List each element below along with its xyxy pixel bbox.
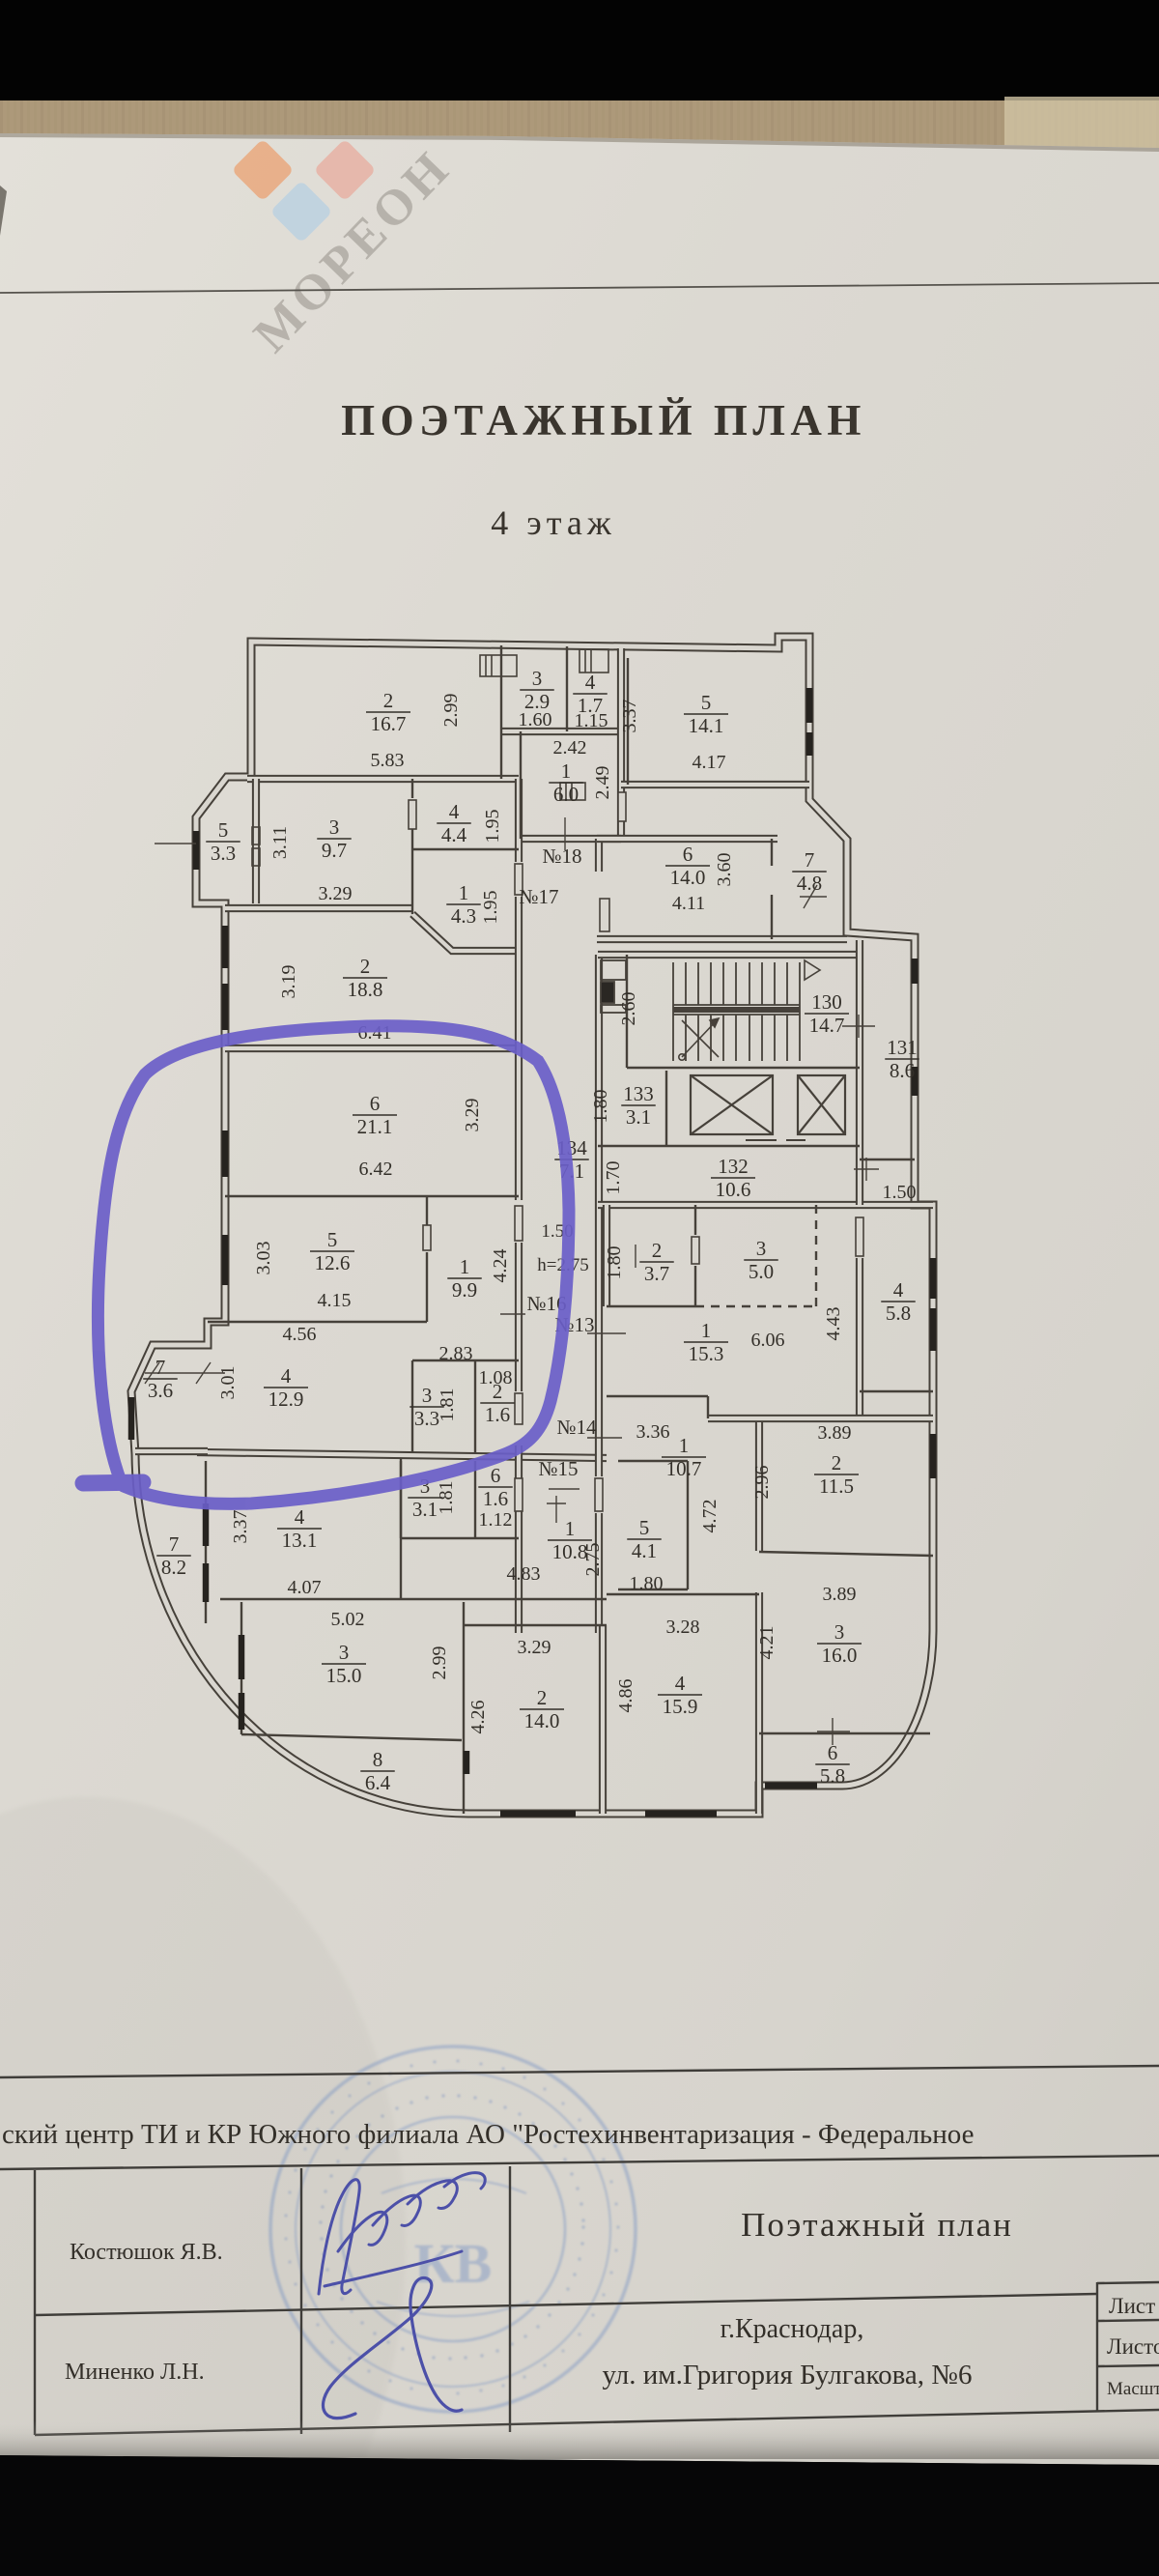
svg-text:14.1: 14.1 [689, 714, 724, 737]
svg-text:4.07: 4.07 [288, 1577, 322, 1598]
svg-text:4.56: 4.56 [283, 1324, 317, 1345]
svg-text:Листов: Листов [1107, 2334, 1159, 2359]
svg-text:4.21: 4.21 [756, 1626, 777, 1660]
svg-text:9.9: 9.9 [452, 1278, 477, 1302]
svg-text:6: 6 [370, 1092, 381, 1115]
svg-text:14.0: 14.0 [670, 866, 706, 889]
svg-text:ский центр ТИ и КР Южного фили: ский центр ТИ и КР Южного филиала АО "Ро… [2, 2119, 975, 2150]
svg-text:2.83: 2.83 [439, 1343, 473, 1364]
svg-text:1: 1 [679, 1434, 690, 1457]
svg-text:8.6: 8.6 [890, 1059, 915, 1082]
svg-text:2.75: 2.75 [582, 1543, 604, 1577]
svg-text:№14: №14 [556, 1416, 597, 1439]
svg-text:4: 4 [295, 1505, 305, 1529]
svg-text:4.4: 4.4 [441, 823, 467, 846]
svg-text:15.0: 15.0 [326, 1664, 362, 1687]
svg-text:7: 7 [169, 1532, 180, 1556]
svg-text:3.29: 3.29 [518, 1637, 551, 1658]
svg-text:16.7: 16.7 [371, 712, 407, 735]
svg-text:5.83: 5.83 [371, 750, 405, 771]
svg-text:2.60: 2.60 [618, 992, 639, 1026]
svg-text:ПОЭТАЖНЫЙ ПЛАН: ПОЭТАЖНЫЙ ПЛАН [341, 396, 866, 444]
svg-text:12.9: 12.9 [269, 1388, 304, 1411]
svg-text:3.89: 3.89 [823, 1584, 857, 1605]
svg-text:132: 132 [718, 1155, 749, 1178]
svg-text:2.99: 2.99 [440, 694, 462, 728]
svg-text:14.7: 14.7 [809, 1014, 845, 1037]
svg-text:1: 1 [460, 1255, 470, 1278]
svg-text:12.6: 12.6 [315, 1251, 351, 1274]
svg-text:4: 4 [281, 1364, 292, 1388]
svg-text:4.26: 4.26 [467, 1701, 489, 1734]
svg-text:5.02: 5.02 [331, 1609, 365, 1630]
svg-text:14.0: 14.0 [524, 1709, 560, 1732]
svg-text:8.2: 8.2 [161, 1556, 186, 1579]
svg-text:1: 1 [561, 759, 572, 783]
svg-text:№17: №17 [519, 885, 558, 908]
svg-text:4.43: 4.43 [823, 1307, 844, 1341]
svg-text:5: 5 [327, 1228, 338, 1251]
svg-text:4.72: 4.72 [699, 1500, 721, 1533]
svg-text:5.8: 5.8 [886, 1302, 911, 1325]
svg-text:5: 5 [218, 818, 229, 842]
svg-text:10.6: 10.6 [716, 1178, 751, 1201]
svg-text:1.6: 1.6 [483, 1487, 508, 1510]
svg-text:9.7: 9.7 [322, 839, 347, 862]
svg-text:4.8: 4.8 [797, 872, 822, 895]
svg-text:21.1: 21.1 [357, 1115, 393, 1138]
svg-text:3.89: 3.89 [818, 1422, 852, 1444]
svg-text:131: 131 [887, 1036, 918, 1059]
svg-text:1.80: 1.80 [604, 1246, 625, 1280]
svg-text:2: 2 [537, 1686, 548, 1709]
svg-text:2.42: 2.42 [553, 737, 587, 758]
svg-text:1.95: 1.95 [482, 810, 503, 844]
svg-text:5.8: 5.8 [820, 1764, 845, 1788]
svg-text:3: 3 [329, 816, 340, 839]
svg-text:4.11: 4.11 [672, 893, 705, 914]
svg-text:5: 5 [639, 1516, 650, 1539]
svg-text:6.42: 6.42 [359, 1159, 393, 1180]
svg-text:13.1: 13.1 [282, 1529, 318, 1552]
svg-text:2.99: 2.99 [429, 1646, 450, 1680]
svg-text:4: 4 [893, 1278, 904, 1302]
svg-text:№15: №15 [538, 1457, 578, 1480]
svg-text:4.15: 4.15 [318, 1290, 352, 1311]
svg-text:Лист: Лист [1109, 2294, 1155, 2318]
svg-text:1.95: 1.95 [480, 891, 501, 925]
svg-text:Поэтажный план: Поэтажный план [741, 2206, 1013, 2244]
svg-text:16.0: 16.0 [822, 1644, 858, 1667]
svg-text:5: 5 [701, 691, 712, 714]
svg-text:1.81: 1.81 [436, 1481, 457, 1515]
svg-text:4 этаж: 4 этаж [491, 503, 615, 542]
svg-text:4: 4 [585, 671, 596, 694]
svg-text:3: 3 [339, 1641, 350, 1664]
svg-text:3.1: 3.1 [412, 1498, 438, 1521]
svg-text:130: 130 [811, 990, 842, 1014]
svg-text:10.7: 10.7 [666, 1457, 702, 1480]
svg-text:1.60: 1.60 [519, 709, 552, 730]
svg-text:6.06: 6.06 [751, 1330, 785, 1351]
svg-text:3.7: 3.7 [644, 1262, 669, 1285]
svg-text:2: 2 [360, 955, 371, 978]
svg-text:2.49: 2.49 [592, 766, 613, 800]
svg-text:1: 1 [459, 881, 469, 904]
svg-text:3.29: 3.29 [462, 1099, 483, 1132]
svg-text:4.24: 4.24 [490, 1249, 511, 1283]
svg-text:4.83: 4.83 [507, 1563, 541, 1585]
svg-text:г.Краснодар,: г.Краснодар, [721, 2314, 864, 2344]
svg-text:4.1: 4.1 [632, 1539, 657, 1562]
svg-text:6.4: 6.4 [365, 1771, 391, 1794]
svg-text:3.3: 3.3 [211, 842, 236, 865]
svg-text:6.0: 6.0 [553, 783, 579, 806]
svg-text:1: 1 [565, 1517, 576, 1540]
svg-text:6: 6 [683, 843, 693, 866]
svg-text:3.37: 3.37 [619, 700, 640, 733]
svg-text:3.60: 3.60 [714, 853, 735, 887]
svg-text:3.11: 3.11 [269, 826, 291, 859]
svg-text:Костюшок Я.В.: Костюшок Я.В. [70, 2240, 223, 2265]
svg-text:4: 4 [675, 1672, 686, 1695]
svg-text:1.12: 1.12 [479, 1509, 513, 1531]
svg-text:1.80: 1.80 [590, 1090, 611, 1124]
svg-text:ул. им.Григория Булгакова, №6: ул. им.Григория Булгакова, №6 [603, 2360, 973, 2390]
svg-text:2: 2 [832, 1451, 842, 1474]
svg-text:Масшт: Масшт [1107, 2379, 1159, 2399]
svg-text:3.1: 3.1 [626, 1105, 651, 1129]
svg-text:3.6: 3.6 [148, 1379, 173, 1402]
svg-text:3: 3 [756, 1237, 767, 1260]
svg-text:2: 2 [652, 1239, 663, 1262]
svg-text:2.96: 2.96 [751, 1466, 773, 1500]
svg-text:4.3: 4.3 [451, 904, 476, 928]
svg-text:№18: №18 [542, 844, 581, 868]
svg-text:7: 7 [805, 848, 815, 872]
svg-text:133: 133 [623, 1082, 654, 1105]
svg-text:4: 4 [449, 800, 460, 823]
svg-text:7: 7 [155, 1356, 166, 1379]
svg-text:6: 6 [828, 1741, 838, 1764]
svg-text:2: 2 [383, 689, 394, 712]
svg-text:1: 1 [701, 1319, 712, 1342]
svg-text:3: 3 [532, 667, 543, 690]
svg-text:5.0: 5.0 [749, 1260, 774, 1283]
svg-text:3.28: 3.28 [666, 1617, 700, 1638]
svg-text:3: 3 [834, 1620, 845, 1644]
svg-text:3.29: 3.29 [319, 883, 353, 904]
svg-text:3: 3 [422, 1384, 433, 1407]
svg-text:1.15: 1.15 [575, 710, 608, 731]
svg-text:1.50: 1.50 [883, 1182, 917, 1203]
svg-text:3.01: 3.01 [217, 1366, 239, 1400]
svg-text:15.9: 15.9 [663, 1695, 698, 1718]
svg-text:3.36: 3.36 [636, 1421, 670, 1443]
svg-text:1.80: 1.80 [630, 1573, 664, 1594]
svg-text:1.81: 1.81 [437, 1388, 458, 1422]
svg-text:6: 6 [491, 1464, 501, 1487]
svg-text:8: 8 [373, 1748, 383, 1771]
svg-text:18.8: 18.8 [348, 978, 383, 1001]
svg-text:11.5: 11.5 [819, 1474, 854, 1498]
svg-text:КВ: КВ [414, 2232, 493, 2295]
svg-text:3.37: 3.37 [230, 1510, 251, 1544]
svg-text:1.70: 1.70 [603, 1161, 624, 1195]
svg-text:1.08: 1.08 [479, 1367, 513, 1388]
svg-text:15.3: 15.3 [689, 1342, 724, 1365]
svg-text:Миненко Л.Н.: Миненко Л.Н. [65, 2360, 205, 2385]
svg-text:1.6: 1.6 [485, 1403, 510, 1426]
svg-text:3.19: 3.19 [278, 965, 299, 999]
svg-text:3.03: 3.03 [253, 1242, 274, 1275]
svg-text:4.17: 4.17 [693, 752, 726, 773]
svg-text:4.86: 4.86 [615, 1679, 636, 1713]
